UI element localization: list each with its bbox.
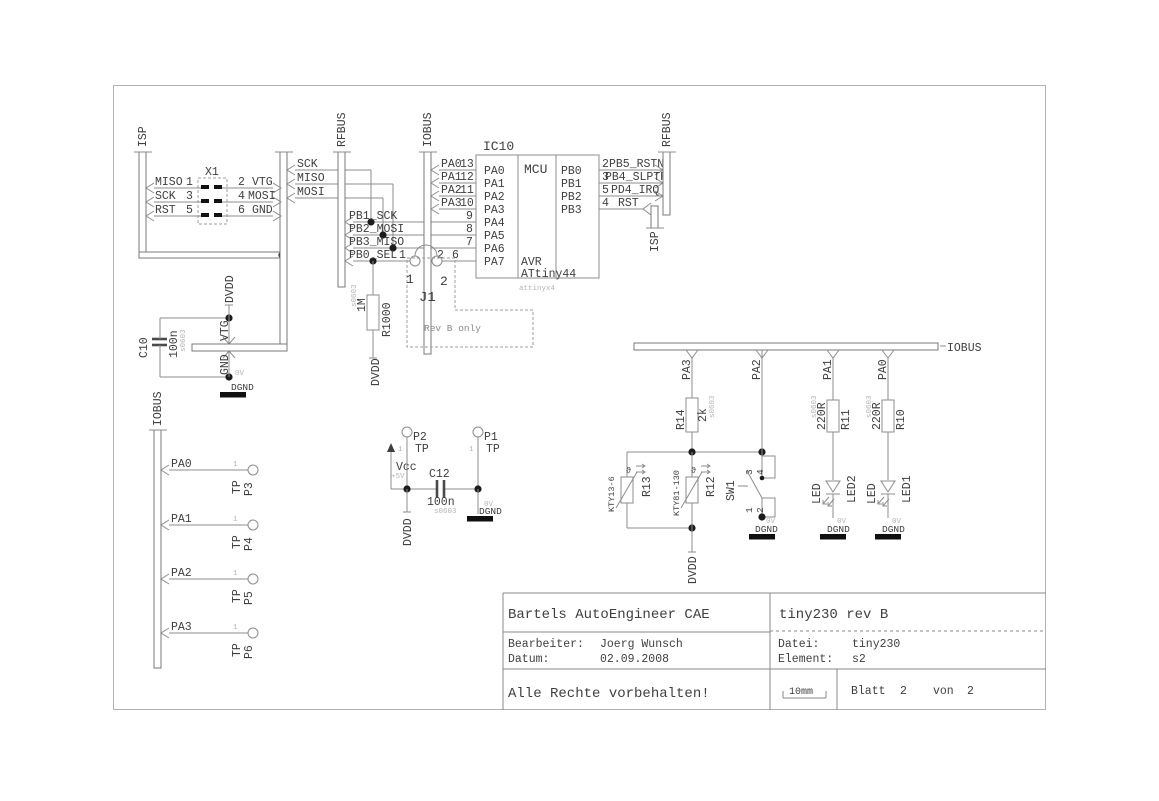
tp-row-0: PA0 1 TP P3 [161,458,258,496]
x1-r-pin-0: 2 [238,176,245,189]
x1-pads [201,185,222,217]
c10-package: s0603 [180,329,188,352]
bus-label-iobus-right: IOBUS [947,342,982,355]
mcu-pin-name-pa5: PA5 [484,230,505,243]
testpoint-p5 [248,574,258,584]
titleblock-datum: 02.09.2008 [600,653,669,666]
c10-vtg-gnd: C10 100n s0603 DVDD VTG GND 0V DGND [138,275,287,397]
sw1-pin1: 1 [744,507,755,513]
tp-pin-p6: 1 [233,624,238,632]
net-label-miso: MISO [297,172,325,185]
power-label-dvdd-sensors: DVDD [687,556,700,584]
mcu-pin-num-10: 10 [460,197,474,210]
x1-ref: X1 [205,166,219,179]
mcu-title: MCU [524,162,547,177]
mcu-pin-num-11: 11 [460,184,474,197]
testpoint-p1 [473,427,483,437]
mcu-ic10: IC10 MCU AVR ATtiny44 attinyx4 13 12 11 … [437,139,667,293]
r13-theta-symbol: ϑ [626,466,631,476]
tp-pin-p2: 1 [398,446,403,454]
led-branch-led2: s0603 220R R11 LED LED2 0V DGND [811,358,859,540]
sensor-circuit: R14 2k s0603 ϑ KTY13-6 R13 [607,350,778,584]
net-label-pb2-mosi: PB2_MOSI [349,223,404,236]
mcu-pin-name-pa4: PA4 [484,217,505,230]
power-label-dvdd-c10: DVDD [224,275,237,303]
mcu-bus-label-pa0: PA0 [441,158,462,171]
mcu-bus-label-pa2: PA2 [441,184,462,197]
titleblock-von-total: 2 [967,685,974,698]
r14-ref: R14 [675,409,688,430]
ground-bar [820,534,846,540]
r13-ref: R13 [641,476,654,497]
bus-label-isp-right: ISP [649,231,662,252]
tp-row-3: PA3 1 TP P6 [161,621,258,659]
testpoint-p6 [248,628,258,638]
titleblock-datei-label: Datei: [778,638,819,651]
titleblock-element-label: Element: [778,653,833,666]
iobus-right-taps [686,350,894,358]
mcu-rpin-num-2: 2 [602,158,609,171]
r1000-value: 1M [356,298,369,312]
tp-name-p4: P4 [243,537,256,551]
led-branch-led1: s0603 220R R10 LED LED1 0V DGND [866,358,914,540]
net-label-pb5-rstn: PB5_RSTN [609,158,664,171]
tp-net-pa2: PA2 [171,567,192,580]
titleblock-producer: Bartels AutoEngineer CAE [508,607,710,623]
mcu-pin-name-pb2: PB2 [561,191,582,204]
mcu-footprint: attinyx4 [519,285,556,293]
x1-r-pin-1: 4 [238,190,245,203]
ground-bar [875,534,901,540]
titleblock-bearbeiter-label: Bearbeiter: [508,638,584,651]
r10-value: 220R [871,402,884,430]
tp-name-p6: P6 [243,645,256,659]
r12-ref: R12 [705,476,718,497]
r13-part: KTY13-6 [607,476,617,512]
x1-l-sig-0: MISO [155,176,183,189]
schematic-canvas: ISP X1 MISO 1 SCK 3 RST 5 2 VTG 4 [0,0,1159,801]
gnd-0v-c10: 0V [235,370,245,378]
x1-r-sig-1: MOSI [248,190,276,203]
iobus-right: IOBUS PA3 PA2 PA1 PA0 [634,342,982,380]
net-label-mosi: MOSI [297,186,325,199]
mcu-rpin-num-5: 5 [602,184,609,197]
sw1-ref: SW1 [725,480,738,501]
c12-ref: C12 [429,468,450,481]
r11-ref: R11 [840,409,853,430]
mcu-rpin-num-4: 4 [602,197,609,210]
sw1-pin2: 2 [755,507,766,513]
x1-l-pin-1: 3 [186,190,193,203]
net-label-rst: RST [618,197,639,210]
j1-ref: J1 [419,290,436,306]
titleblock-datum-label: Datum: [508,653,549,666]
mcu-pin-num-8: 8 [466,223,473,236]
c12-package: s0603 [434,508,457,516]
led1-ref: LED1 [901,475,914,503]
r11-value: 220R [816,402,829,430]
bus-label-isp-left: ISP [137,126,150,147]
tp-row-1: PA1 1 TP P4 [161,513,258,551]
titleblock-title: tiny230 rev B [779,607,888,623]
bus-label-rfbus-left: RFBUS [336,112,349,147]
title-block: Bartels AutoEngineer CAE Bearbeiter: Joe… [503,593,1046,710]
bus-label-iobus-bottom: IOBUS [152,391,165,426]
tp-net-pa0: PA0 [171,458,192,471]
x1-l-pin-0: 1 [186,176,193,189]
vcc-5v-label: +5V [391,473,405,481]
x1-side-bus [275,152,293,344]
mcu-pin-name-pa0: PA0 [484,165,505,178]
sw1-pin4: 4 [755,469,766,475]
isp-right-bus: ISP [643,203,664,252]
mcu-bus-label-pa1: PA1 [441,171,462,184]
mcu-part: ATtiny44 [521,268,576,281]
schematic-page: ISP X1 MISO 1 SCK 3 RST 5 2 VTG 4 [0,0,1159,801]
tp-net-pa3: PA3 [171,621,192,634]
tp-pin-p5: 1 [233,570,238,578]
mid-testpoints: P2 TP 1 P1 TP 1 Vcc +5V C12 100n s0603 D… [387,427,502,546]
mcu-pin-num-9: 9 [466,210,473,223]
j1-pad2: 2 [440,274,448,289]
testpoint-p3 [248,465,258,475]
led1-value: LED [866,483,879,504]
j1-pin2-number: 2 [437,249,444,262]
bus-label-rfbus-right: RFBUS [661,112,674,147]
vcc-symbol [387,443,395,489]
j1-pad1: 1 [406,272,414,287]
mcu-pin-name-pb1: PB1 [561,178,582,191]
net-label-gnd: GND [219,354,232,375]
titleblock-blatt-number: 2 [900,685,907,698]
titleblock-rights: Alle Rechte vorbehalten! [508,686,710,702]
gnd-label-dgnd-sw1: DGND [755,524,778,535]
resistor-r1000: s0603 1M R1000 DVDD [351,261,394,386]
c10-ref: C10 [138,337,151,358]
j1-pin1-number: 1 [399,249,406,262]
testpoint-p4 [248,520,258,530]
tp-type-p2: TP [415,443,429,456]
mcu-pin-name-pa7: PA7 [484,256,505,269]
power-label-dvdd-c12: DVDD [402,518,415,546]
r10-ref: R10 [895,409,908,430]
titleblock-bearbeiter: Joerg Wunsch [600,638,683,651]
tp-net-pa1: PA1 [171,513,192,526]
titleblock-datei: tiny230 [852,638,900,651]
x1-l-sig-1: SCK [155,190,176,203]
gnd-label-dgnd-led2: DGND [827,524,850,535]
j1-note: Rev B only [424,323,481,334]
ground-bar [467,516,493,522]
tp-name-p5: P5 [243,591,256,605]
led2-ref: LED2 [846,475,859,503]
x1-r-pin-2: 6 [238,204,245,217]
net-label-vtg: VTG [219,320,232,341]
gnd-label-dgnd-c10: DGND [231,382,254,393]
tp-name-p3: P3 [243,482,256,496]
titleblock-von-label: von [933,685,954,698]
x1-connector: X1 MISO 1 SCK 3 RST 5 2 VTG 4 MOSI 6 GND [146,166,281,224]
tp-type-p1: TP [486,443,500,456]
titleblock-blatt-label: Blatt [851,685,886,698]
led2-value: LED [811,483,824,504]
ground-bar [220,392,246,398]
mcu-pin-name-pa2: PA2 [484,191,505,204]
titleblock-scale: 10mm [789,687,813,698]
mcu-pin-name-pa3: PA3 [484,204,505,217]
net-label-pb1-sck: PB1_SCK [349,210,397,223]
r12-theta-symbol: ϑ [691,466,696,476]
tp-pin-p4: 1 [233,516,238,524]
ground-bar [749,534,775,540]
power-label-dvdd: DVDD [370,358,383,386]
x1-l-pin-2: 5 [186,204,193,217]
thermistor-r13: ϑ KTY13-6 R13 [607,464,654,512]
mcu-pin-num-12: 12 [460,171,474,184]
mcu-pin-name-pa6: PA6 [484,243,505,256]
mcu-pin-num-13: 13 [460,158,474,171]
x1-r-sig-2: GND [252,204,273,217]
led1-symbol [878,481,895,518]
mcu-ref: IC10 [483,139,514,154]
x1-l-sig-2: RST [155,204,176,217]
net-label-pb4-slptr: PB4_SLPTR [605,171,667,184]
testpoint-p2 [402,427,412,437]
mcu-bus-label-pa3: PA3 [441,197,462,210]
gnd-label-dgnd-led1: DGND [882,524,905,535]
x1-r-sig-0: VTG [252,176,273,189]
net-label-sck: SCK [297,158,318,171]
mcu-pin-num-7: 7 [466,236,473,249]
gnd-label-dgnd-c12: DGND [479,506,502,517]
bus-label-iobus-mcu: IOBUS [422,112,435,147]
net-label-pd4-irq: PD4_IRQ [611,184,659,197]
r12-part: KTY81-130 [672,470,682,516]
r14-package: s0603 [709,395,717,418]
titleblock-element: s2 [852,653,866,666]
thermistor-r12: ϑ KTY81-130 R12 [672,464,718,516]
mcu-pin-name-pa1: PA1 [484,178,505,191]
r1000-ref: R1000 [381,302,394,337]
net-label-pb0-sel: PB0_SEL [349,249,397,262]
tp-pin-p3: 1 [233,461,238,469]
tp-pin-p1: 1 [469,446,474,454]
led2-symbol [823,481,840,518]
net-label-pb3-miso: PB3_MISO [349,236,404,249]
iobus-bottom-left: IOBUS PA0 1 TP P3 PA1 1 TP P4 PA2 1 TP P… [149,391,258,668]
tp-row-2: PA2 1 TP P5 [161,567,258,605]
mcu-pin-name-pb3: PB3 [561,204,582,217]
sw1-pin3: 3 [744,469,755,475]
mcu-pin-name-pb0: PB0 [561,165,582,178]
